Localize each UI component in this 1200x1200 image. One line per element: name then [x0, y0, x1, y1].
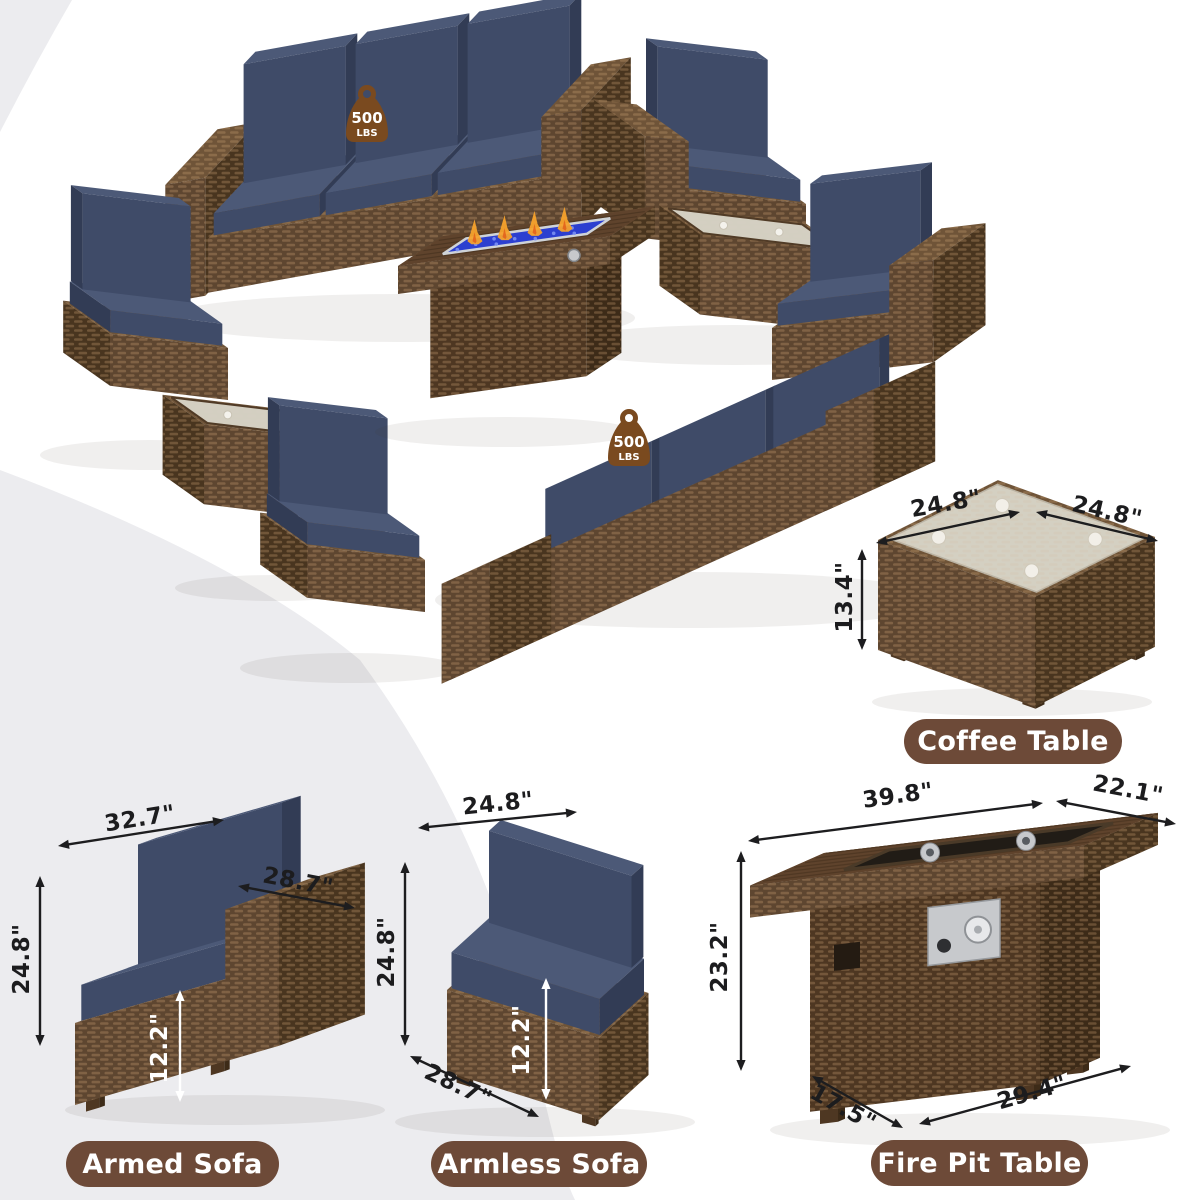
badge-capacity-unit: LBS [618, 452, 639, 463]
product-infographic: 500 LBS 500 LBS 24.8" 24.8" 13.4" 32.7" … [0, 0, 1200, 1200]
dim-armed-seat-height: 12.2" [147, 1012, 173, 1083]
label-fire-pit-table-text: Fire Pit Table [877, 1148, 1081, 1179]
label-coffee-table: Coffee Table [904, 719, 1122, 764]
weight-capacity-badge: 500 LBS [344, 84, 390, 144]
badge-capacity-value: 500 [613, 433, 644, 451]
label-coffee-table-text: Coffee Table [917, 726, 1109, 757]
label-armed-sofa-text: Armed Sofa [82, 1149, 262, 1180]
dim-coffee-height: 13.4" [832, 561, 858, 632]
label-fire-pit-table: Fire Pit Table [871, 1140, 1088, 1186]
dim-armless-height: 24.8" [374, 916, 400, 987]
dim-armed-height: 24.8" [9, 923, 35, 994]
weight-capacity-badge: 500 LBS [606, 408, 652, 468]
dim-firepit-height: 23.2" [707, 921, 733, 992]
badge-capacity-unit: LBS [356, 128, 377, 139]
furniture-illustration [0, 0, 1200, 1200]
label-armless-sofa: Armless Sofa [431, 1141, 647, 1187]
dim-armless-seat-height: 12.2" [509, 1004, 535, 1075]
label-armless-sofa-text: Armless Sofa [437, 1149, 640, 1180]
label-armed-sofa: Armed Sofa [66, 1141, 279, 1187]
badge-capacity-value: 500 [351, 109, 382, 127]
